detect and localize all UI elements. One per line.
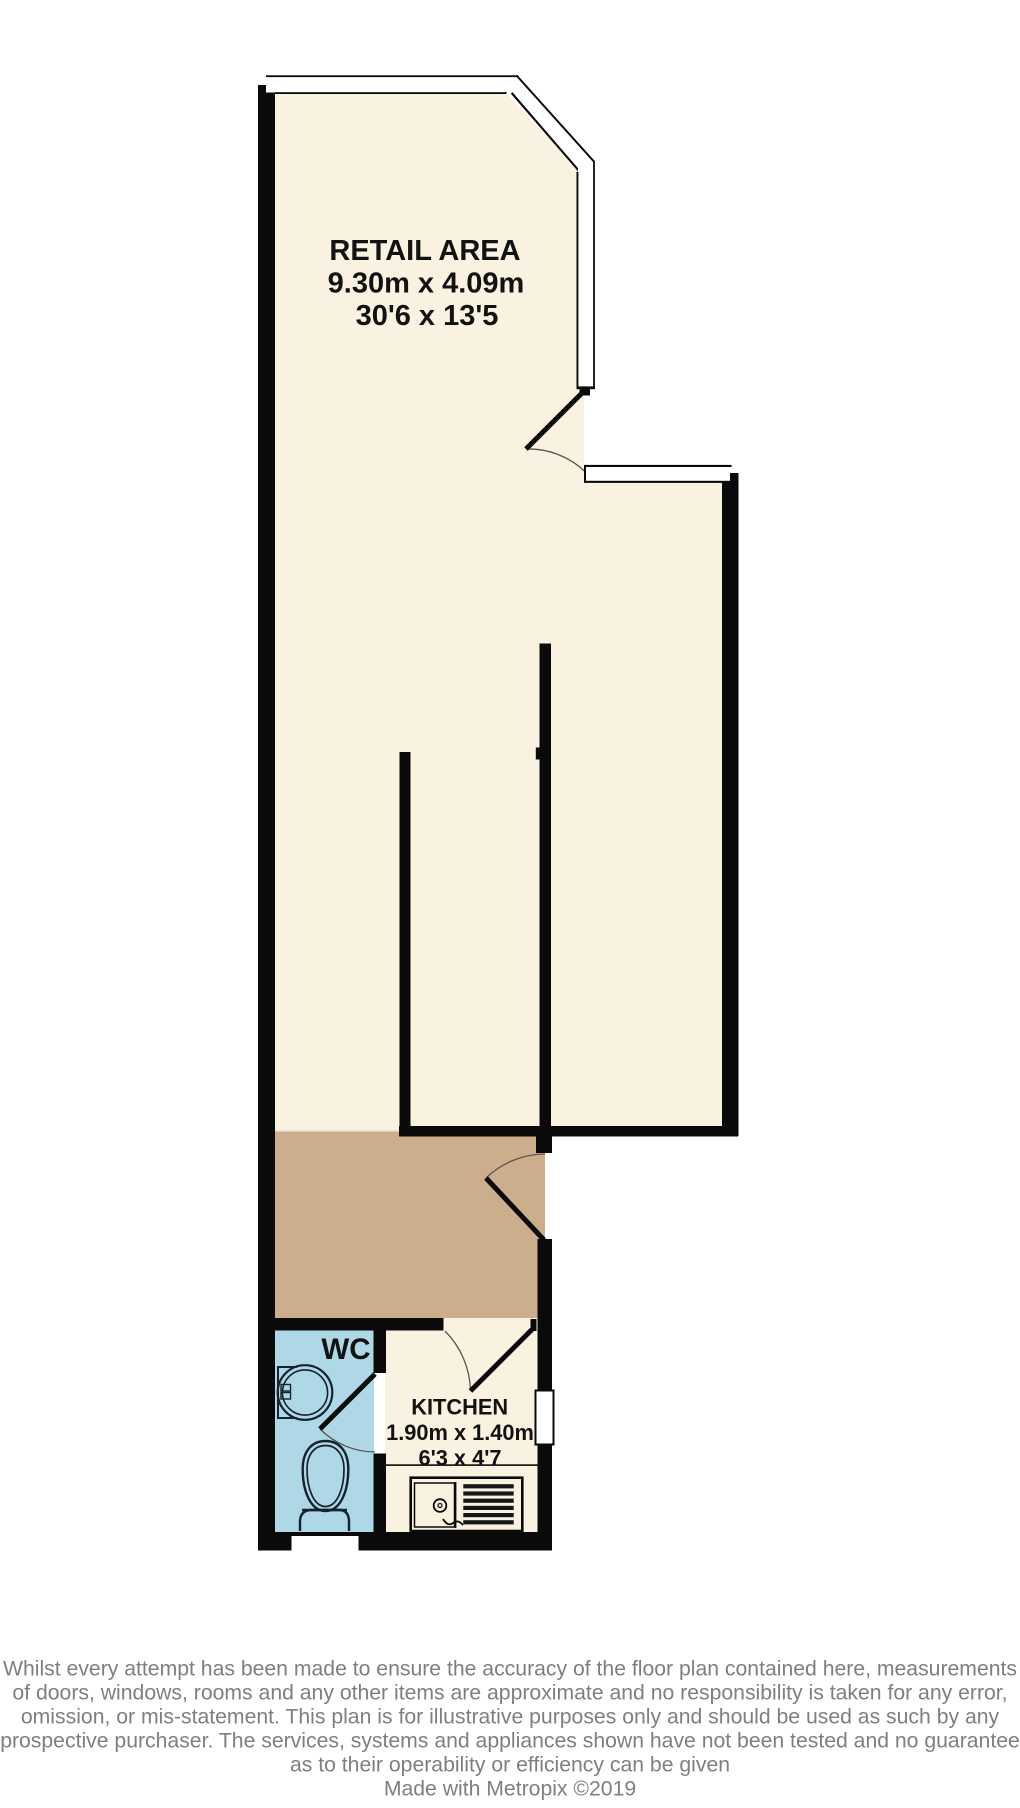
- svg-text:prospective purchaser. The ser: prospective purchaser. The services, sys…: [0, 1730, 1020, 1753]
- svg-text:KITCHEN: KITCHEN: [411, 1394, 508, 1419]
- svg-text:30'6 x 13'5: 30'6 x 13'5: [356, 300, 499, 332]
- svg-text:RETAIL AREA: RETAIL AREA: [329, 235, 520, 267]
- svg-text:WC: WC: [321, 1333, 370, 1366]
- svg-text:of doors, windows, rooms and a: of doors, windows, rooms and any other i…: [12, 1682, 1007, 1705]
- svg-text:1.90m x 1.40m: 1.90m x 1.40m: [386, 1420, 534, 1445]
- svg-text:9.30m x 4.09m: 9.30m x 4.09m: [328, 268, 525, 300]
- svg-text:Made with Metropix ©2019: Made with Metropix ©2019: [384, 1778, 636, 1801]
- svg-text:omission, or mis-statement. Th: omission, or mis-statement. This plan is…: [21, 1706, 1000, 1729]
- svg-text:as to their operability or eff: as to their operability or efficiency ca…: [290, 1754, 730, 1777]
- svg-text:6'3 x 4'7: 6'3 x 4'7: [418, 1446, 501, 1471]
- svg-text:Whilst every attempt has been: Whilst every attempt has been made to en…: [3, 1658, 1017, 1681]
